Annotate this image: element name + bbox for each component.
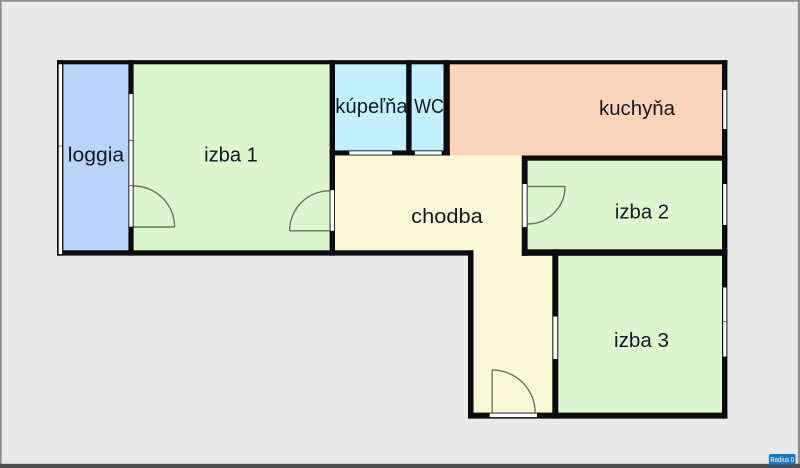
svg-text:WC: WC: [414, 96, 444, 118]
svg-text:izba 2: izba 2: [615, 202, 669, 224]
svg-text:Radius 0: Radius 0: [770, 457, 794, 464]
svg-text:izba 1: izba 1: [204, 145, 258, 167]
svg-text:chodba: chodba: [411, 206, 484, 228]
svg-text:kuchyňa: kuchyňa: [599, 98, 676, 120]
svg-text:loggia: loggia: [68, 145, 125, 167]
svg-text:izba 3: izba 3: [614, 330, 669, 352]
svg-text:kúpeľňa: kúpeľňa: [335, 96, 408, 118]
